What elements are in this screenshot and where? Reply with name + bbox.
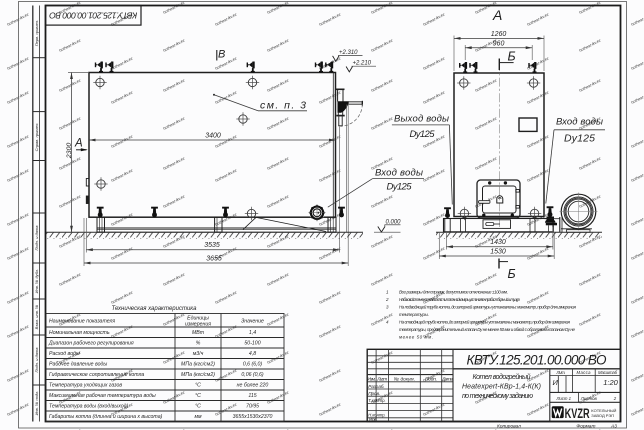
svg-text:Максимальная рабочая температу: Максимальная рабочая температура воды: [49, 393, 156, 399]
svg-text:Б: Б: [508, 267, 516, 281]
svg-text:Листов: Листов: [580, 396, 598, 401]
svg-text:Все размеры для справок, допус: Все размеры для справок, допустимое откл…: [399, 290, 508, 295]
svg-text:1260: 1260: [491, 31, 507, 38]
svg-text:Подп. и дата: Подп. и дата: [34, 347, 39, 373]
svg-text:Формат: Формат: [576, 424, 595, 430]
svg-text:не более 220: не более 220: [237, 383, 269, 389]
svg-text:50-100: 50-100: [244, 341, 260, 347]
svg-text:Котел водогрейный: Котел водогрейный: [473, 373, 531, 381]
svg-text:МПа (кгс/см2): МПа (кгс/см2): [181, 372, 215, 378]
svg-text:Лист: Лист: [556, 396, 568, 401]
svg-text:Разраб.: Разраб.: [368, 384, 385, 390]
svg-text:А3: А3: [610, 424, 617, 430]
svg-text:Масса: Масса: [577, 370, 592, 375]
svg-text:Лист: Лист: [376, 376, 387, 382]
svg-text:0,06 (0,6): 0,06 (0,6): [241, 372, 263, 378]
svg-text:Наименование показателя: Наименование показателя: [49, 319, 115, 325]
svg-text:Масштаб: Масштаб: [598, 370, 618, 375]
svg-text:Подп. и дата: Подп. и дата: [34, 225, 39, 251]
svg-text:А: А: [492, 7, 502, 23]
svg-text:№ докум.: № докум.: [394, 376, 415, 382]
svg-text:%: %: [196, 341, 201, 347]
svg-text:Температура воды (вход/выход): Температура воды (вход/выход): [49, 404, 128, 410]
svg-text:Рабочее давление воды: Рабочее давление воды: [49, 362, 107, 368]
svg-text:Лит.: Лит.: [556, 370, 566, 375]
svg-text:температуры, предохранительный: температуры, предохранительный клапан Dy…: [399, 326, 575, 332]
svg-text:1530: 1530: [490, 249, 506, 256]
svg-text:Подп.: Подп.: [425, 376, 437, 382]
svg-text:115: 115: [248, 393, 256, 399]
svg-text:Значение: Значение: [241, 319, 264, 325]
svg-text:Изм.: Изм.: [367, 376, 376, 382]
svg-text:Гидравлическое сопротивление к: Гидравлическое сопротивление котла: [49, 372, 144, 378]
svg-text:А: А: [74, 138, 83, 150]
svg-text:МПа (кгс/см2): МПа (кгс/см2): [181, 362, 215, 368]
svg-text:Dy125: Dy125: [564, 133, 595, 145]
svg-text:2300: 2300: [66, 142, 73, 159]
svg-text:мм: мм: [194, 414, 202, 420]
svg-text:4,8: 4,8: [249, 351, 256, 357]
svg-text:Инв. № подл.: Инв. № подл.: [34, 391, 39, 416]
svg-text:Техническая характеристика: Техническая характеристика: [112, 306, 198, 312]
svg-text:Heatexpert-КВр-1,4-К(К): Heatexpert-КВр-1,4-К(К): [462, 384, 541, 391]
svg-text:Вход воды: Вход воды: [556, 117, 603, 128]
svg-text:КВТУ.125.201.00.000 ВО: КВТУ.125.201.00.000 ВО: [467, 353, 607, 368]
svg-text:по техническому заданию: по техническому заданию: [462, 392, 534, 400]
svg-text:Вход воды: Вход воды: [375, 168, 423, 179]
svg-text:1:20: 1:20: [603, 378, 618, 387]
svg-text:В: В: [218, 49, 225, 61]
svg-text:менее 50 мм.: менее 50 мм.: [399, 335, 433, 340]
svg-text:Расход воды: Расход воды: [49, 351, 80, 357]
svg-text:1430: 1430: [490, 239, 506, 246]
svg-text:°С: °С: [195, 393, 201, 399]
svg-text:Пров.: Пров.: [368, 391, 380, 397]
svg-text:0,6 (6,0): 0,6 (6,0): [243, 362, 263, 368]
svg-text:КОТЕЛЬНЫЙ: КОТЕЛЬНЫЙ: [591, 408, 616, 413]
svg-text:Утв.: Утв.: [368, 417, 377, 423]
svg-text:м3/ч: м3/ч: [193, 351, 204, 357]
svg-text:960: 960: [493, 40, 505, 47]
svg-text:Инв. № дубл.: Инв. № дубл.: [34, 269, 39, 294]
svg-text:°С: °С: [195, 404, 201, 410]
svg-text:КВТУ.125.201.00.000 ВО: КВТУ.125.201.00.000 ВО: [49, 10, 137, 20]
svg-text:0.000: 0.000: [386, 219, 402, 225]
svg-text:2: 2: [385, 297, 389, 302]
svg-text:KVZR: KVZR: [565, 406, 590, 421]
svg-text:измерения: измерения: [185, 322, 211, 328]
svg-text:Dy125: Dy125: [410, 129, 436, 140]
svg-text:Б: Б: [508, 50, 516, 64]
svg-text:На отводящей трубе котла ,до з: На отводящей трубе котла ,до запорной ар…: [399, 319, 571, 325]
svg-text:Взам. инв. №: Взам. инв. №: [34, 304, 39, 329]
svg-text:Температура уходящих газов: Температура уходящих газов: [49, 383, 122, 389]
svg-text:Диапазон рабочего регулировани: Диапазон рабочего регулирования: [48, 341, 134, 347]
svg-text:Выход воды: Выход воды: [394, 114, 449, 125]
svg-text:Перв. примен.: Перв. примен.: [34, 20, 39, 47]
svg-text:температуры.: температуры.: [399, 312, 429, 317]
svg-text:На подводящей трубе котла, д: На подводящей трубе котла, до запорной а…: [399, 304, 577, 310]
svg-text:Копировал: Копировал: [497, 424, 521, 430]
svg-text:3535: 3535: [204, 242, 220, 249]
svg-text:Номинальная мощность: Номинальная мощность: [49, 330, 110, 336]
svg-text:На боковой стенке котла в обла: На боковой стенке котла в области топочн…: [399, 296, 520, 302]
svg-text:МВт: МВт: [192, 330, 205, 336]
svg-text:Дата: Дата: [441, 376, 453, 382]
svg-text:3655х1530х2370: 3655х1530х2370: [233, 414, 273, 420]
svg-text:1,4: 1,4: [249, 330, 256, 336]
svg-text:70/95: 70/95: [246, 404, 259, 410]
svg-text:Справ. примен.: Справ. примен.: [34, 123, 39, 152]
svg-text:3400: 3400: [205, 133, 221, 140]
svg-text:+2.210: +2.210: [353, 61, 372, 67]
svg-text:Габариты котла (длинна и ширин: Габариты котла (длинна и ширина х высота…: [49, 414, 163, 420]
svg-text:И: И: [553, 378, 559, 387]
svg-text:Т.контр.: Т.контр.: [368, 398, 386, 404]
svg-text:Dy125: Dy125: [387, 182, 413, 193]
svg-text:°С: °С: [195, 383, 201, 389]
svg-text:3655: 3655: [206, 256, 222, 263]
svg-text:ЗАВОД РЭП: ЗАВОД РЭП: [591, 413, 614, 418]
